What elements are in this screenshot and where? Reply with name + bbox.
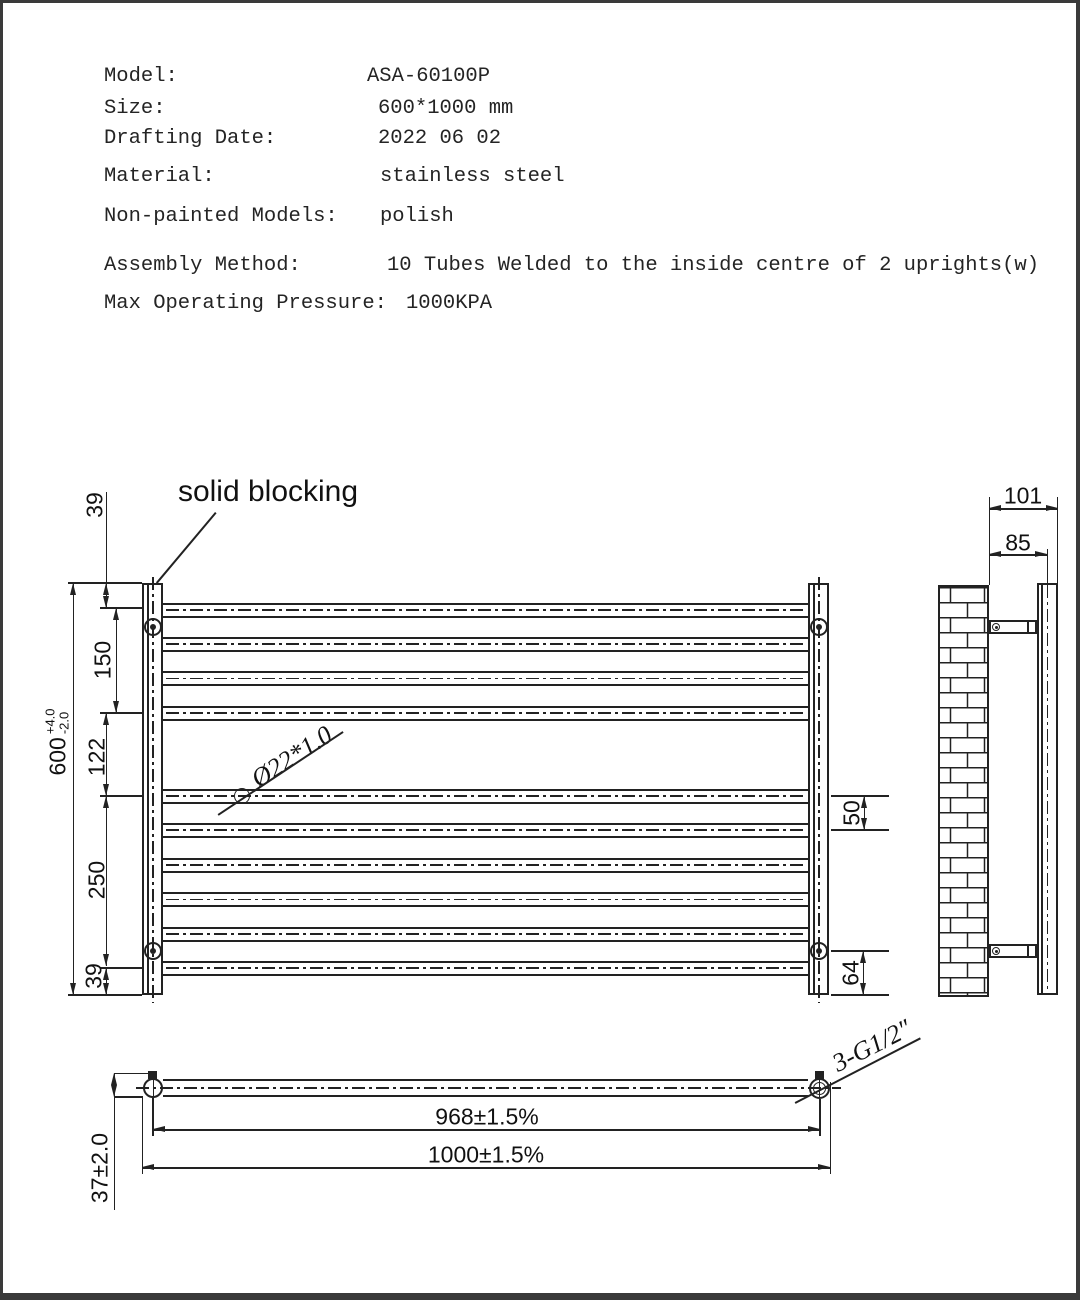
spec-value: stainless steel xyxy=(380,165,565,188)
ext-line-tube1 xyxy=(100,607,142,609)
screw-dot xyxy=(995,626,998,629)
tube-bottom-edge xyxy=(163,802,808,804)
tube-bottom-edge xyxy=(163,871,808,873)
spec-row: Max Operating Pressure: xyxy=(104,292,387,315)
tube-top-edge xyxy=(163,927,808,929)
tube-spec-label: Ø22*1.0 xyxy=(246,720,338,794)
side-upright-inner-line xyxy=(1041,585,1043,993)
spec-label: Size: xyxy=(104,97,166,120)
arrow-up xyxy=(103,796,109,808)
right-upright-centerline xyxy=(818,577,820,1003)
side-upright-centerline xyxy=(1047,585,1049,993)
mounting-hole-dot xyxy=(816,624,822,630)
arrow-down xyxy=(103,596,109,608)
arrow-up xyxy=(113,608,119,620)
drawing-sheet: Model: ASA-60100P Size: 600*1000 mm Draf… xyxy=(0,0,1080,1300)
left-upright-centerline xyxy=(152,577,154,1003)
spec-label: Drafting Date: xyxy=(104,127,276,150)
arrow-left xyxy=(142,1164,154,1170)
tube-bottom-edge xyxy=(163,905,808,907)
spec-label: Assembly Method: xyxy=(104,254,301,277)
dim-text-lower-span: 250 xyxy=(84,861,111,899)
mounting-hole-dot xyxy=(150,624,156,630)
tube-centerline xyxy=(166,864,805,866)
frame-left xyxy=(0,0,3,1300)
wall-section xyxy=(938,585,989,997)
tube-centerline xyxy=(166,678,805,680)
tube-bottom-edge xyxy=(163,650,808,652)
plan-left-bracket xyxy=(148,1071,157,1079)
tube-centerline xyxy=(166,609,805,611)
plan-tube-centerline xyxy=(136,1087,841,1089)
spec-value: 600*1000 mm xyxy=(378,97,513,120)
tube-bottom-edge xyxy=(163,616,808,618)
solid-blocking-label: solid blocking xyxy=(178,475,358,509)
arrow-down xyxy=(103,784,109,796)
dim-text-depth-to-center: 85 xyxy=(1005,530,1031,557)
spec-row: Material: xyxy=(104,165,215,188)
plan-tube-bottom-edge xyxy=(163,1095,808,1097)
screw-dot xyxy=(995,950,998,953)
tube-top-edge xyxy=(163,603,808,605)
spec-value: 2022 06 02 xyxy=(378,127,501,150)
spec-value: 10 Tubes Welded to the inside centre of … xyxy=(387,254,1039,277)
tube-bottom-edge xyxy=(163,836,808,838)
arrow-down xyxy=(70,983,76,995)
spec-label: Non-painted Models: xyxy=(104,205,338,228)
tube-bottom-edge xyxy=(163,974,808,976)
spec-value: polish xyxy=(380,205,454,228)
frame-bottom xyxy=(0,1293,1080,1300)
dim-text-bottom-offset: 39 xyxy=(81,963,108,989)
spec-value: 1000KPA xyxy=(406,292,492,315)
arrow-right xyxy=(808,1126,820,1132)
tube-centerline xyxy=(166,899,805,901)
dim-text-tube-centres: 968±1.5% xyxy=(435,1104,538,1131)
arrow-up xyxy=(103,583,109,595)
tube-centerline xyxy=(166,712,805,714)
arrow-up xyxy=(111,1073,117,1085)
spec-row: Non-painted Models: xyxy=(104,205,338,228)
tube-top-edge xyxy=(163,637,808,639)
tube-centerline xyxy=(166,933,805,935)
plan-left-center-tick xyxy=(153,1079,154,1098)
tube-top-edge xyxy=(163,961,808,963)
ext-line-37-top xyxy=(114,1073,148,1075)
tube-centerline xyxy=(166,643,805,645)
arrow-right xyxy=(818,1164,830,1170)
tube-top-edge xyxy=(163,823,808,825)
dim-text-overall-height: 600+4.0-2.0 xyxy=(44,708,73,775)
tube-top-edge xyxy=(163,706,808,708)
dim-text-depth: 37±2.0 xyxy=(87,1133,114,1203)
dim-text-upper-span: 150 xyxy=(90,641,117,679)
ext-line-left-outer xyxy=(142,1097,144,1174)
plan-right-bracket xyxy=(815,1071,824,1079)
arrow-right xyxy=(1035,551,1047,557)
arrow-left xyxy=(989,505,1001,511)
dim-text-depth-overall: 101 xyxy=(1004,483,1042,510)
spec-row: Assembly Method: xyxy=(104,254,301,277)
dim-text-middle-gap: 122 xyxy=(84,738,111,776)
spec-row: Model: xyxy=(104,65,178,88)
arrow-left xyxy=(989,551,1001,557)
arrow-down xyxy=(113,701,119,713)
top-bracket-divider xyxy=(1027,620,1029,634)
spec-row: Drafting Date: xyxy=(104,127,276,150)
connection-label: 3-G1/2″ xyxy=(828,1013,917,1078)
left-upright-inner-line xyxy=(147,585,149,993)
tube-centerline xyxy=(166,795,805,797)
brick-hatch xyxy=(940,587,987,995)
spec-label: Model: xyxy=(104,65,178,88)
tube-top-edge xyxy=(163,671,808,673)
spec-label: Max Operating Pressure: xyxy=(104,292,387,315)
arrow-left xyxy=(153,1126,165,1132)
tube-centerline xyxy=(166,829,805,831)
tube-centerline xyxy=(166,967,805,969)
solid-blocking-leader xyxy=(156,512,216,583)
tube-top-edge xyxy=(163,892,808,894)
tube-top-edge xyxy=(163,858,808,860)
right-upright-inner-line xyxy=(813,585,815,993)
arrow-down xyxy=(111,1085,117,1097)
dim-text-tube-pitch: 50 xyxy=(839,800,866,826)
arrow-up xyxy=(70,583,76,595)
arrow-up xyxy=(103,713,109,725)
tube-bottom-edge xyxy=(163,940,808,942)
dim-text-overall-width: 1000±1.5% xyxy=(428,1142,544,1169)
ext-line-37-bottom xyxy=(114,1096,143,1098)
tube-top-edge xyxy=(163,789,808,791)
mounting-hole-dot xyxy=(150,948,156,954)
arrow-right xyxy=(1046,505,1058,511)
bottom-bracket-divider xyxy=(1027,944,1029,958)
ext-line-right-outer xyxy=(830,1082,832,1174)
tube-bottom-edge xyxy=(163,684,808,686)
dim-line-600 xyxy=(73,583,75,995)
spec-row: Size: xyxy=(104,97,166,120)
tube-bottom-edge xyxy=(163,719,808,721)
spec-label: Material: xyxy=(104,165,215,188)
dim-text-bottom-bracket: 64 xyxy=(838,960,865,986)
dim-text-top-offset: 39 xyxy=(82,492,109,518)
plan-tube-top-edge xyxy=(163,1079,808,1081)
frame-top xyxy=(0,0,1080,3)
spec-value: ASA-60100P xyxy=(367,65,490,88)
mounting-hole-dot xyxy=(816,948,822,954)
frame-right xyxy=(1076,0,1080,1300)
